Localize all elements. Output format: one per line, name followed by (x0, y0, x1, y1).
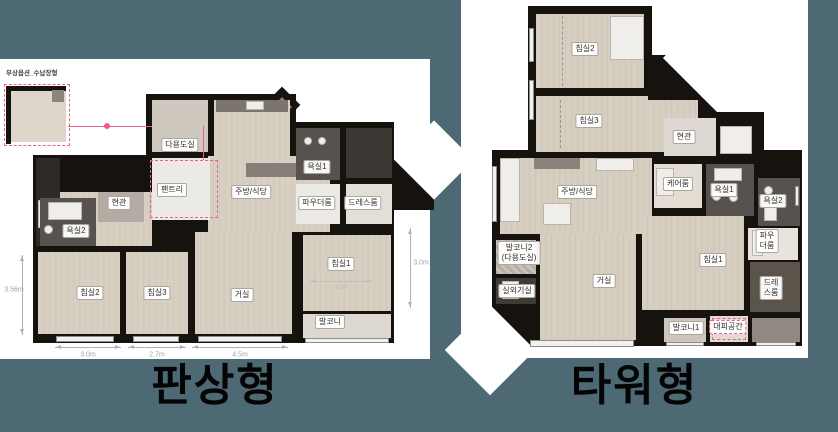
dim-bedroom2-width: 3.0m (80, 352, 96, 359)
label-kitchen-dining: 주방/식당 (557, 185, 597, 199)
dim-left-height: 3.56m (4, 287, 23, 294)
bedroom1-floor (642, 216, 744, 310)
label-balcony1: 발코니1 (669, 321, 704, 335)
kitchen-island (543, 203, 571, 225)
right-floorplan-card: 침실2침실3현관주방/식당케어룸욕실1욕실2파우 더룸드레 스룸침실1거실발코니… (461, 0, 808, 358)
label-dress-room: 드레 스룸 (760, 276, 783, 300)
label-bedroom3: 침실3 (575, 114, 602, 128)
toilet (44, 225, 53, 234)
label-balcony2-utility: 발코니2 (다용도실) (498, 241, 541, 265)
bath1-sink (304, 137, 312, 145)
label-pantry: 팬트리 (157, 183, 187, 197)
label-entrance: 현관 (108, 196, 131, 210)
left-floorplan-card: 무상옵션_수납장형 (0, 59, 430, 359)
label-utility-room: 다용도실 (161, 138, 198, 152)
label-balcony: 발코니 (315, 315, 345, 329)
bathtub (48, 202, 82, 220)
bath1-sink2 (318, 137, 326, 145)
dim-bedroom1-width: 3.3m (334, 285, 347, 291)
shoe-closet (720, 126, 752, 154)
label-living-room: 거실 (231, 288, 254, 302)
label-dress-room: 드레스룸 (344, 196, 381, 210)
label-kitchen-dining: 주방/식당 (231, 185, 271, 199)
bedroom1-floor (303, 235, 391, 311)
left-plan-title: 판상형 (0, 362, 430, 410)
living-room-floor (195, 232, 292, 334)
label-bedroom2: 침실2 (76, 286, 103, 300)
label-powder-room: 파우더룸 (298, 196, 335, 210)
right-plan-title: 타워형 (461, 362, 808, 410)
fridge (596, 158, 634, 171)
label-bedroom1: 침실1 (327, 257, 354, 271)
sink (246, 101, 264, 110)
closet-dark (346, 128, 392, 178)
dim-bedroom3-width: 2.7m (149, 352, 165, 359)
dim-living-width: 4.5m (232, 352, 248, 359)
label-bedroom1: 침실1 (699, 253, 726, 267)
label-outdoor-unit-room: 실외기실 (498, 284, 535, 298)
label-powder-room: 파우 더룸 (756, 229, 779, 253)
living-room-window (530, 340, 634, 347)
label-living-room: 거실 (593, 274, 616, 288)
label-entrance: 현관 (673, 130, 696, 144)
label-evacuation-space: 대피공간 (709, 320, 746, 334)
bath1-tub (714, 168, 742, 181)
label-bath1: 욕실1 (303, 160, 330, 174)
kitchen-counter (500, 158, 520, 222)
label-care-room: 케어룸 (663, 177, 693, 191)
dining-table (246, 163, 298, 177)
label-bedroom3: 침실3 (143, 286, 170, 300)
rear-balcony-floor (752, 318, 800, 342)
label-bath1: 욕실1 (710, 183, 737, 197)
kitchen-hood (534, 158, 580, 169)
label-bedroom2: 침실2 (571, 42, 598, 56)
dim-right-height: 3.0m (413, 260, 429, 267)
inset-connector-line (68, 126, 152, 127)
label-bath2: 욕실2 (62, 224, 89, 238)
wardrobe (610, 16, 644, 60)
inset-caption: 무상옵션_수납장형 (6, 67, 57, 77)
label-bath2: 욕실2 (759, 194, 786, 208)
comparison-graphic: 무상옵션_수납장형 (0, 0, 838, 432)
living-room-floor (540, 234, 636, 340)
